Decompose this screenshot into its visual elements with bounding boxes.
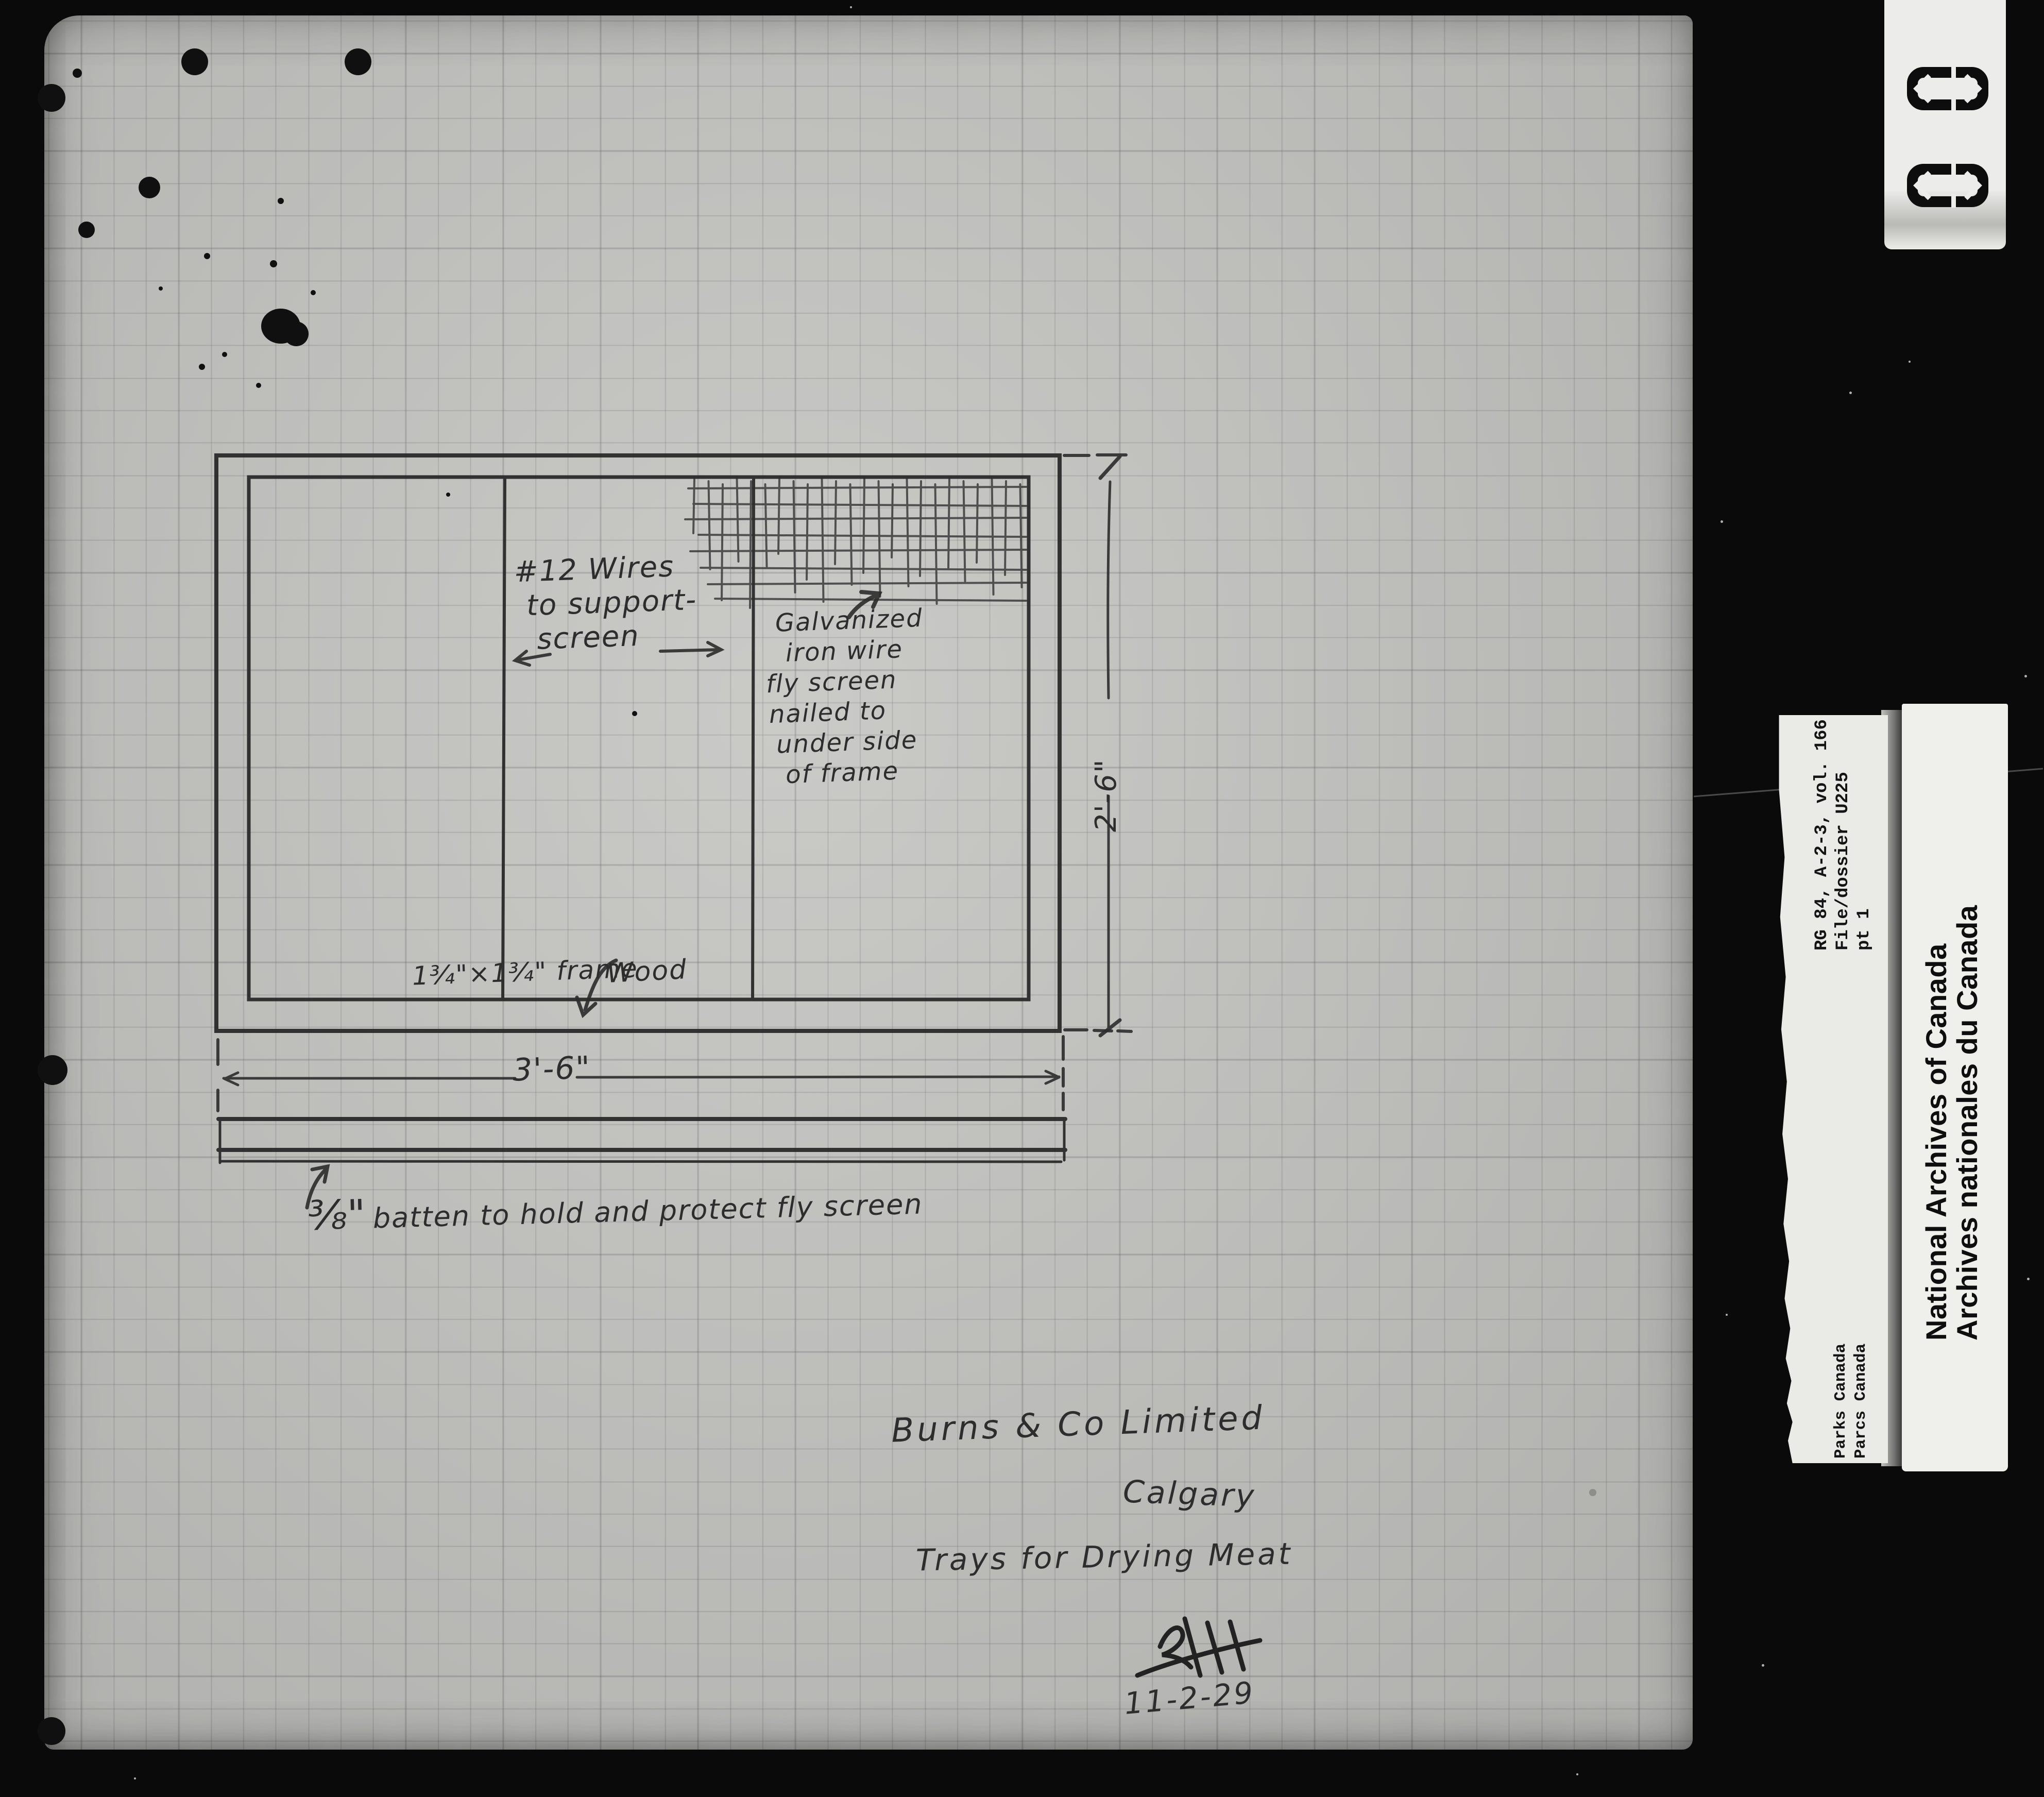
film-speck [2024,675,2027,677]
wires-note: #12 Wires to support- screen [514,549,699,657]
fly-screen-note-line: nailed to [769,694,927,731]
batten-fraction: ⅜" [308,1192,366,1240]
segment-gap [1951,163,1956,177]
parks-canada-text: Parks Canada Parcs Canada [1831,1340,1872,1459]
film-frame-counter [1884,0,2006,249]
wires-note-line: #12 Wires [514,549,696,589]
film-speck [1762,1664,1764,1667]
parks-canada-line: Parcs Canada [1851,1340,1871,1459]
height-dimension-label: 2'-6" [1089,647,1120,832]
segment-gap [1913,86,1931,104]
segment-gap [1964,182,1982,200]
film-speck [1849,392,1852,394]
film-speck [1909,361,1911,363]
segment-gap [1951,97,1956,111]
width-dimension-label: 3'-6" [512,1049,591,1088]
film-speck [134,1777,136,1779]
film-speck [1721,520,1723,523]
fly-screen-note-line: under side [776,724,928,760]
film-speck [1726,1314,1728,1316]
frame-material-note: Wood [606,954,688,989]
archive-reference-text: RG 84, A-2-3, vol. 166 File/dossier U225… [1812,714,1877,951]
segment-gap [1951,194,1956,208]
fly-screen-note-line: iron wire [785,634,925,669]
national-archives-line: Archives nationales du Canada [1952,825,1983,1341]
segment-gap [1913,182,1931,200]
drawing-subject: Trays for Drying Meat [915,1536,1293,1578]
national-archives-text: National Archives of Canada Archives nat… [1921,825,1985,1341]
national-archives-line: National Archives of Canada [1921,825,1952,1341]
microfilm-scan: #12 Wires to support- screen Galvanized … [0,0,2044,1797]
film-speck [1576,1773,1578,1775]
film-speck [2027,1278,2030,1280]
wires-note-line: screen [536,617,699,657]
fly-screen-note-line: Galvanized [775,603,924,639]
fly-screen-note: Galvanized iron wire fly screen nailed t… [760,603,929,791]
archive-reference-line: pt 1 [1854,714,1875,951]
fly-screen-note-line: fly screen [765,664,926,700]
graph-paper-page [44,15,1693,1750]
archive-reference-line: File/dossier U225 [1833,714,1854,951]
segment-gap [1951,66,1956,80]
film-speck [850,6,852,8]
counter-digit [1907,164,1988,207]
fly-screen-note-line: of frame [785,755,929,790]
counter-digit [1907,67,1988,110]
segment-gap [1964,86,1982,104]
parks-canada-line: Parks Canada [1831,1340,1851,1459]
archive-reference-line: RG 84, A-2-3, vol. 166 [1812,714,1833,951]
wires-note-line: to support- [526,583,697,623]
company-city: Calgary [1122,1474,1257,1515]
